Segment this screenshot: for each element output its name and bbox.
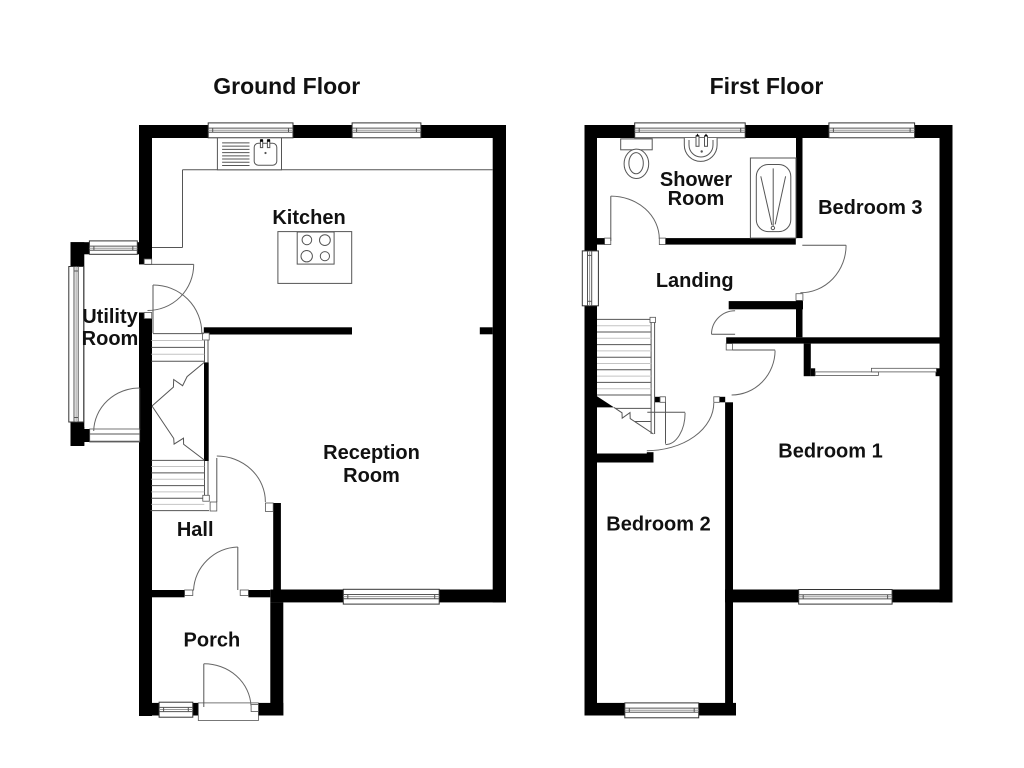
svg-text:Utility: Utility: [82, 306, 138, 328]
svg-text:Room: Room: [82, 328, 139, 350]
svg-text:Landing: Landing: [656, 270, 734, 292]
svg-text:Bedroom 2: Bedroom 2: [606, 513, 710, 535]
svg-text:Reception: Reception: [323, 442, 420, 464]
svg-text:Ground Floor: Ground Floor: [213, 73, 360, 99]
svg-text:Porch: Porch: [184, 630, 241, 652]
svg-text:Room: Room: [343, 465, 400, 487]
svg-text:First Floor: First Floor: [710, 73, 824, 99]
svg-text:Hall: Hall: [177, 519, 214, 541]
svg-text:Room: Room: [668, 188, 725, 210]
svg-text:Bedroom 1: Bedroom 1: [778, 440, 882, 462]
svg-text:Bedroom 3: Bedroom 3: [818, 197, 922, 219]
svg-text:Kitchen: Kitchen: [272, 207, 345, 229]
